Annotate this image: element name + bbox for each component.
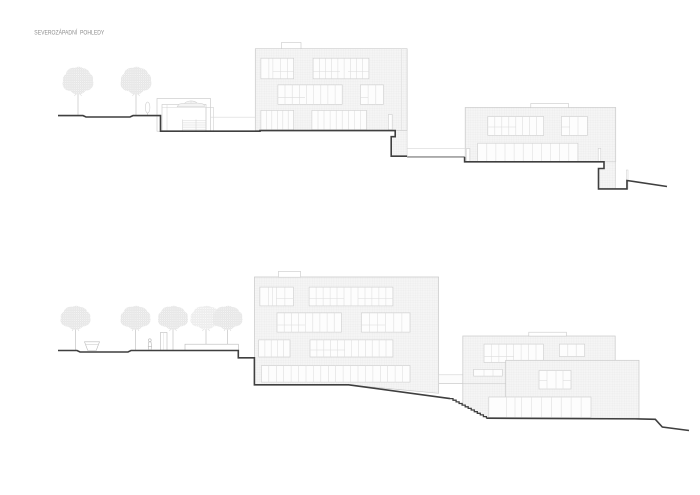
svg-text:SEVEROZÁPADNÍ POHLEDY: SEVEROZÁPADNÍ POHLEDY [34, 28, 104, 37]
